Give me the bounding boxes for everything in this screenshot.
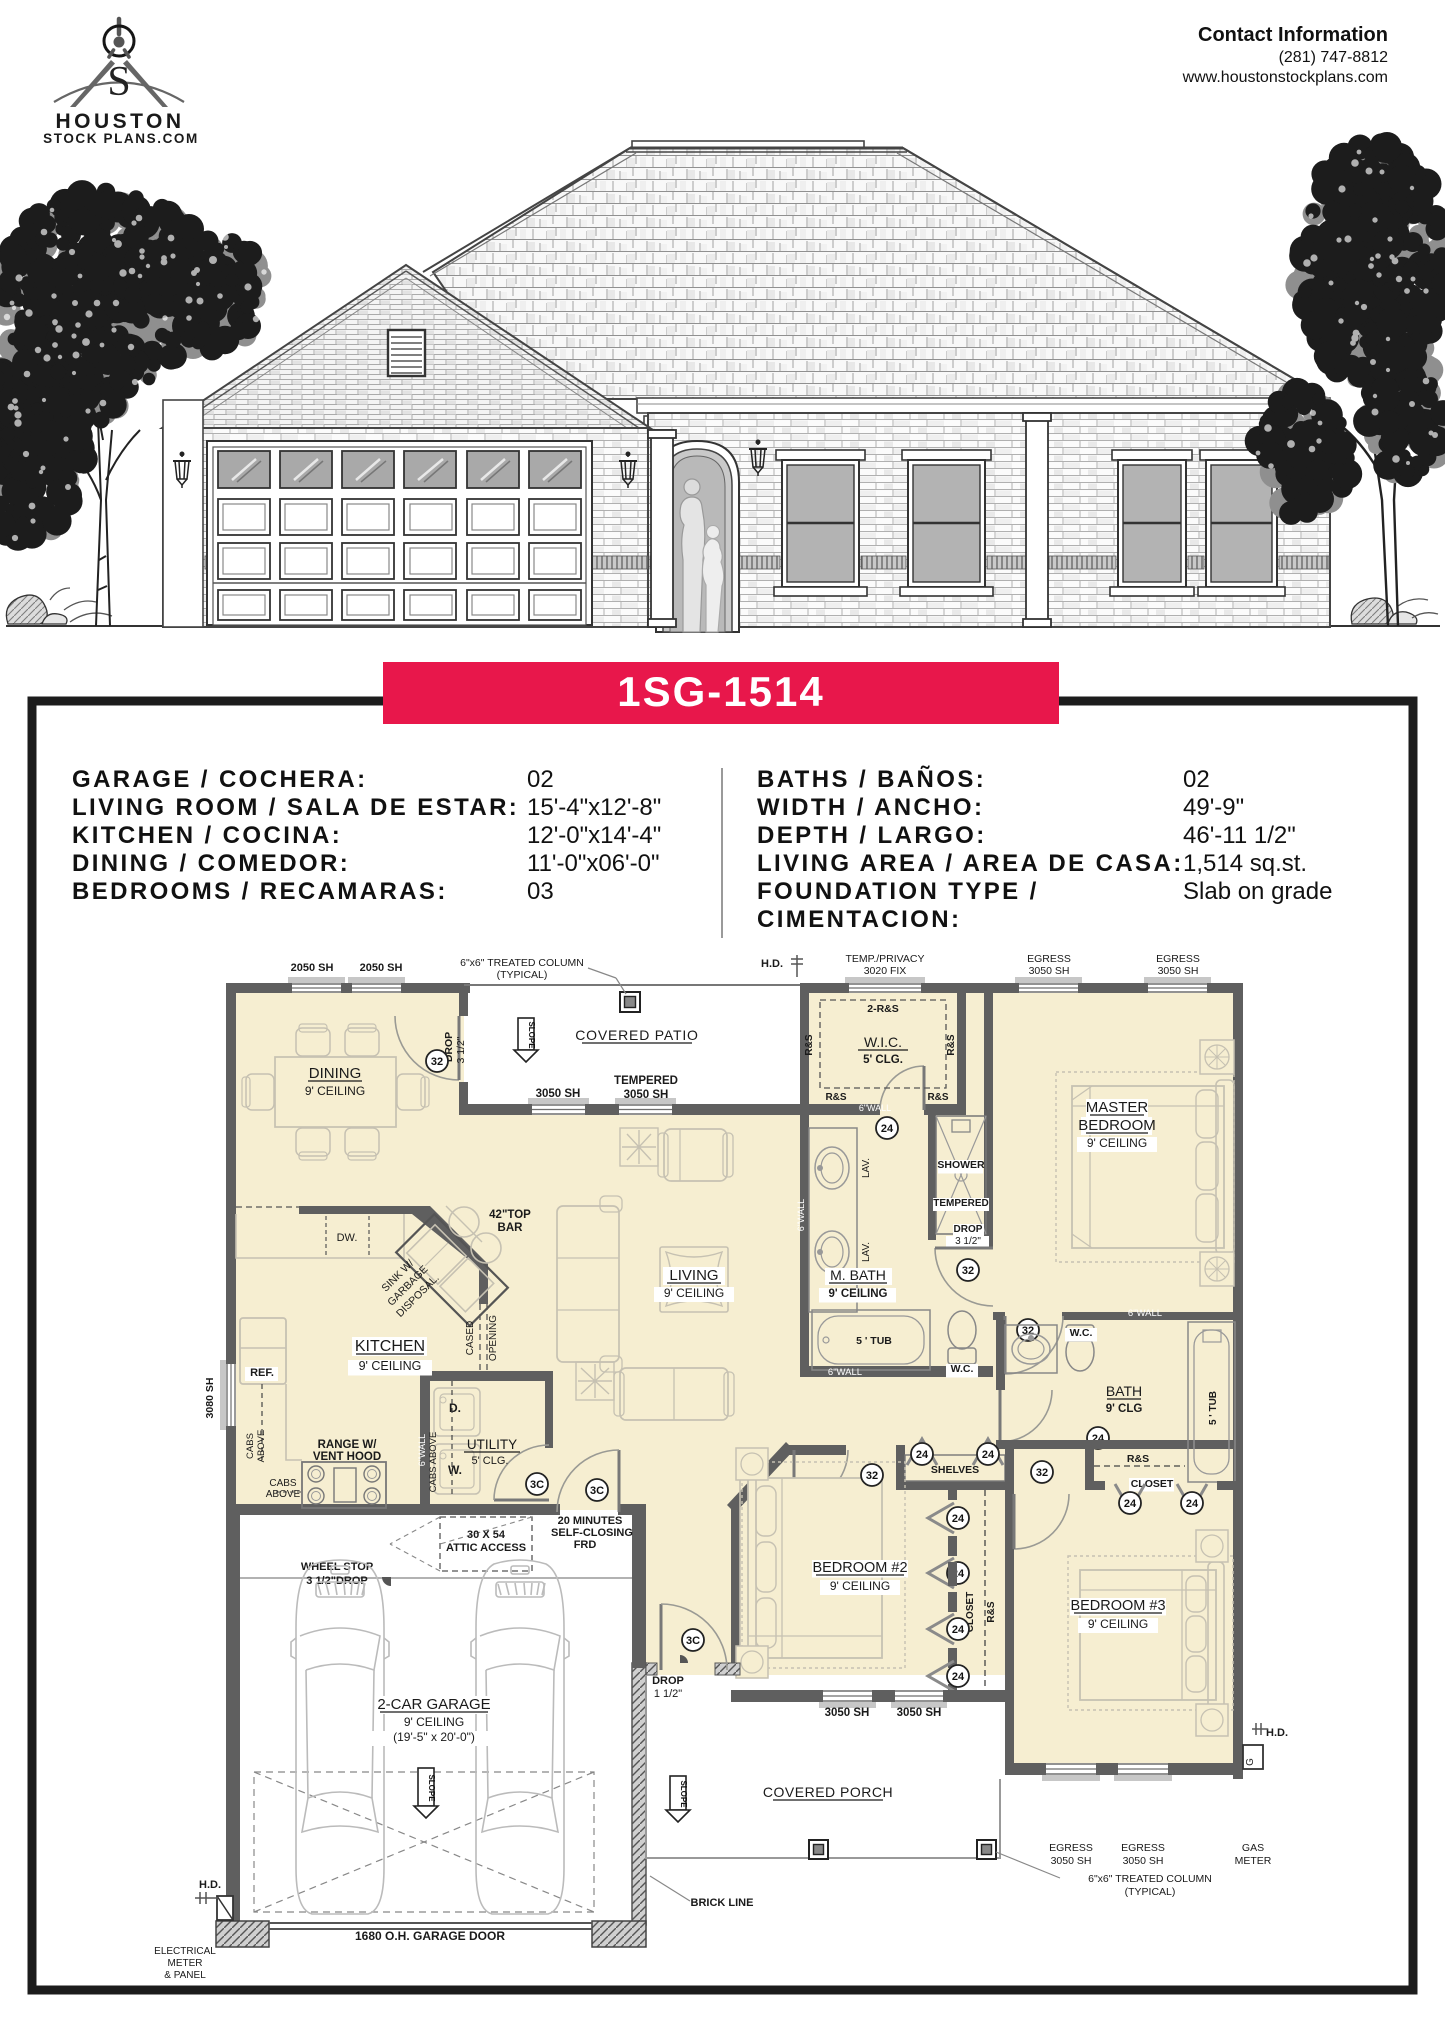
svg-text:6"WALL: 6"WALL (1128, 1308, 1162, 1319)
svg-text:9' CEILING: 9' CEILING (664, 1286, 724, 1300)
svg-text:3C: 3C (686, 1635, 700, 1647)
svg-text:1 1/2": 1 1/2" (654, 1688, 682, 1700)
svg-text:SLOPE: SLOPE (527, 1021, 536, 1049)
svg-text:DROP: DROP (652, 1675, 684, 1687)
svg-text:TEMP./PRIVACY: TEMP./PRIVACY (846, 953, 925, 965)
svg-text:24: 24 (881, 1123, 894, 1135)
svg-text:CLOSET: CLOSET (1131, 1478, 1174, 1490)
svg-text:HOUSTON: HOUSTON (55, 110, 184, 133)
svg-text:2-R&S: 2-R&S (867, 1003, 899, 1015)
svg-text:9' CEILING: 9' CEILING (829, 1288, 888, 1300)
svg-text:32: 32 (431, 1056, 443, 1068)
svg-text:9' CEILING: 9' CEILING (305, 1084, 365, 1098)
svg-text:EGRESS: EGRESS (1156, 953, 1200, 965)
svg-text:BEDROOM: BEDROOM (1078, 1117, 1156, 1134)
svg-text:D.: D. (449, 1401, 461, 1415)
svg-text:R&S: R&S (986, 1601, 997, 1622)
svg-text:3050 SH: 3050 SH (825, 1707, 870, 1719)
svg-text:BEDROOM #3: BEDROOM #3 (1070, 1598, 1165, 1614)
svg-text:W.C.: W.C. (951, 1363, 974, 1375)
svg-text:3 1/2": 3 1/2" (955, 1236, 981, 1247)
svg-text:METER: METER (168, 1958, 203, 1969)
svg-text:6"x6" TREATED COLUMN: 6"x6" TREATED COLUMN (460, 957, 584, 969)
svg-text:(19'-5" x 20'-0"): (19'-5" x 20'-0") (393, 1730, 475, 1744)
svg-text:TEMPERED: TEMPERED (933, 1198, 989, 1209)
svg-text:CABS ABOVE: CABS ABOVE (428, 1432, 439, 1493)
svg-text:3050 SH: 3050 SH (1051, 1855, 1092, 1867)
svg-text:24: 24 (982, 1449, 995, 1461)
svg-text:BAR: BAR (498, 1222, 524, 1234)
svg-text:H.D.: H.D. (199, 1879, 221, 1891)
svg-text:METER: METER (1235, 1855, 1272, 1867)
svg-text:KITCHEN: KITCHEN (355, 1338, 425, 1355)
svg-text:CABS: CABS (269, 1478, 297, 1489)
svg-text:SLOPE: SLOPE (427, 1774, 436, 1802)
svg-text:ELECTRICAL: ELECTRICAL (154, 1946, 216, 1957)
svg-text:LAV.: LAV. (861, 1242, 872, 1262)
svg-text:COVERED PORCH: COVERED PORCH (763, 1784, 893, 1800)
svg-text:DROP: DROP (954, 1224, 983, 1235)
svg-text:FRD: FRD (574, 1539, 597, 1551)
svg-text:3020 FIX: 3020 FIX (864, 965, 907, 977)
svg-text:9' CEILING: 9' CEILING (404, 1715, 464, 1729)
svg-text:6"WALL: 6"WALL (417, 1434, 427, 1466)
svg-text:3 1/2": 3 1/2" (455, 1036, 467, 1063)
svg-text:GAS: GAS (1242, 1842, 1264, 1854)
svg-text:42"TOP: 42"TOP (489, 1209, 531, 1221)
svg-text:S: S (107, 59, 130, 105)
svg-text:EGRESS: EGRESS (1049, 1842, 1093, 1854)
svg-text:LIVING: LIVING (669, 1267, 718, 1284)
svg-text:OPENING: OPENING (488, 1315, 499, 1361)
svg-text:2-CAR GARAGE: 2-CAR GARAGE (377, 1696, 490, 1713)
svg-text:EGRESS: EGRESS (1121, 1842, 1165, 1854)
svg-text:6"WALL: 6"WALL (859, 1103, 891, 1113)
svg-text:ABOVE: ABOVE (256, 1430, 267, 1463)
svg-text:9' CEILING: 9' CEILING (1088, 1617, 1148, 1631)
svg-text:ATTIC ACCESS: ATTIC ACCESS (446, 1542, 526, 1554)
svg-text:H.D.: H.D. (1266, 1727, 1288, 1739)
svg-text:9' CEILING: 9' CEILING (830, 1579, 890, 1593)
svg-text:3080 SH: 3080 SH (204, 1378, 216, 1419)
svg-text:5 ' TUB: 5 ' TUB (1208, 1391, 1219, 1425)
svg-text:G: G (1245, 1758, 1256, 1766)
svg-text:CASED: CASED (465, 1321, 476, 1355)
svg-text:UTILITY: UTILITY (467, 1437, 517, 1452)
svg-text:W.I.C.: W.I.C. (864, 1034, 902, 1050)
svg-text:W.: W. (448, 1463, 462, 1477)
svg-text:5' CLG.: 5' CLG. (863, 1054, 903, 1066)
svg-text:32: 32 (1036, 1467, 1048, 1479)
svg-text:R&S: R&S (825, 1092, 846, 1103)
svg-text:& PANEL: & PANEL (164, 1970, 206, 1981)
svg-text:24: 24 (952, 1513, 965, 1525)
svg-text:W.C.: W.C. (1070, 1327, 1093, 1339)
svg-text:MASTER: MASTER (1086, 1099, 1149, 1116)
svg-text:6"WALL: 6"WALL (828, 1367, 862, 1378)
svg-text:3050 SH: 3050 SH (624, 1089, 669, 1101)
svg-text:DW.: DW. (337, 1232, 358, 1244)
svg-text:3C: 3C (590, 1485, 604, 1497)
svg-text:SHOWER: SHOWER (937, 1159, 985, 1171)
svg-text:COVERED PATIO: COVERED PATIO (575, 1027, 698, 1043)
svg-text:SHELVES: SHELVES (931, 1464, 979, 1476)
svg-text:TEMPERED: TEMPERED (614, 1075, 678, 1087)
svg-text:9' CEILING: 9' CEILING (1087, 1136, 1147, 1150)
svg-text:R&S: R&S (1127, 1453, 1149, 1465)
svg-text:6"WALL: 6"WALL (796, 1199, 806, 1231)
svg-text:(TYPICAL): (TYPICAL) (1125, 1886, 1176, 1898)
svg-text:3050 SH: 3050 SH (1029, 965, 1070, 977)
svg-text:R&S: R&S (804, 1034, 815, 1055)
svg-text:24: 24 (952, 1624, 965, 1636)
svg-text:RANGE W/: RANGE W/ (318, 1439, 378, 1451)
svg-text:DINING: DINING (309, 1065, 362, 1082)
svg-text:24: 24 (1124, 1498, 1137, 1510)
svg-text:EGRESS: EGRESS (1027, 953, 1071, 965)
svg-text:BEDROOM #2: BEDROOM #2 (812, 1560, 907, 1576)
svg-text:32: 32 (962, 1265, 974, 1277)
svg-text:3C: 3C (530, 1479, 544, 1491)
svg-text:3050 SH: 3050 SH (536, 1088, 581, 1100)
svg-text:3050 SH: 3050 SH (897, 1707, 942, 1719)
svg-text:H.D.: H.D. (761, 958, 783, 970)
svg-text:M. BATH: M. BATH (830, 1267, 886, 1283)
svg-text:STOCK PLANS.COM: STOCK PLANS.COM (43, 131, 199, 146)
svg-text:24: 24 (1186, 1498, 1199, 1510)
svg-text:3050 SH: 3050 SH (1158, 965, 1199, 977)
svg-text:REF.: REF. (250, 1367, 274, 1379)
svg-text:SLOPE: SLOPE (679, 1780, 688, 1808)
svg-text:24: 24 (952, 1671, 965, 1683)
svg-text:VENT HOOD: VENT HOOD (313, 1451, 381, 1463)
svg-text:LAV.: LAV. (861, 1158, 872, 1178)
svg-text:CABS: CABS (245, 1433, 256, 1459)
svg-text:2050 SH: 2050 SH (291, 962, 334, 974)
svg-text:3050 SH: 3050 SH (1123, 1855, 1164, 1867)
svg-text:BATH: BATH (1106, 1383, 1142, 1399)
svg-text:24: 24 (916, 1449, 929, 1461)
svg-text:R&S: R&S (927, 1092, 948, 1103)
svg-text:30 X 54: 30 X 54 (467, 1529, 506, 1541)
svg-text:6"x6" TREATED COLUMN: 6"x6" TREATED COLUMN (1088, 1873, 1212, 1885)
svg-text:1680 O.H. GARAGE DOOR: 1680 O.H. GARAGE DOOR (355, 1929, 505, 1943)
svg-text:(TYPICAL): (TYPICAL) (497, 969, 548, 981)
svg-text:9' CEILING: 9' CEILING (359, 1359, 422, 1373)
svg-text:R&S: R&S (946, 1034, 957, 1055)
svg-text:BRICK LINE: BRICK LINE (691, 1897, 754, 1909)
svg-text:SELF-CLOSING: SELF-CLOSING (551, 1527, 633, 1539)
svg-text:5 ' TUB: 5 ' TUB (856, 1335, 892, 1347)
svg-text:20 MINUTES: 20 MINUTES (558, 1515, 623, 1527)
svg-text:9' CLG: 9' CLG (1106, 1403, 1143, 1415)
svg-text:2050 SH: 2050 SH (360, 962, 403, 974)
svg-text:ABOVE: ABOVE (266, 1489, 301, 1500)
svg-text:5' CLG.: 5' CLG. (472, 1455, 509, 1467)
svg-text:32: 32 (866, 1470, 878, 1482)
